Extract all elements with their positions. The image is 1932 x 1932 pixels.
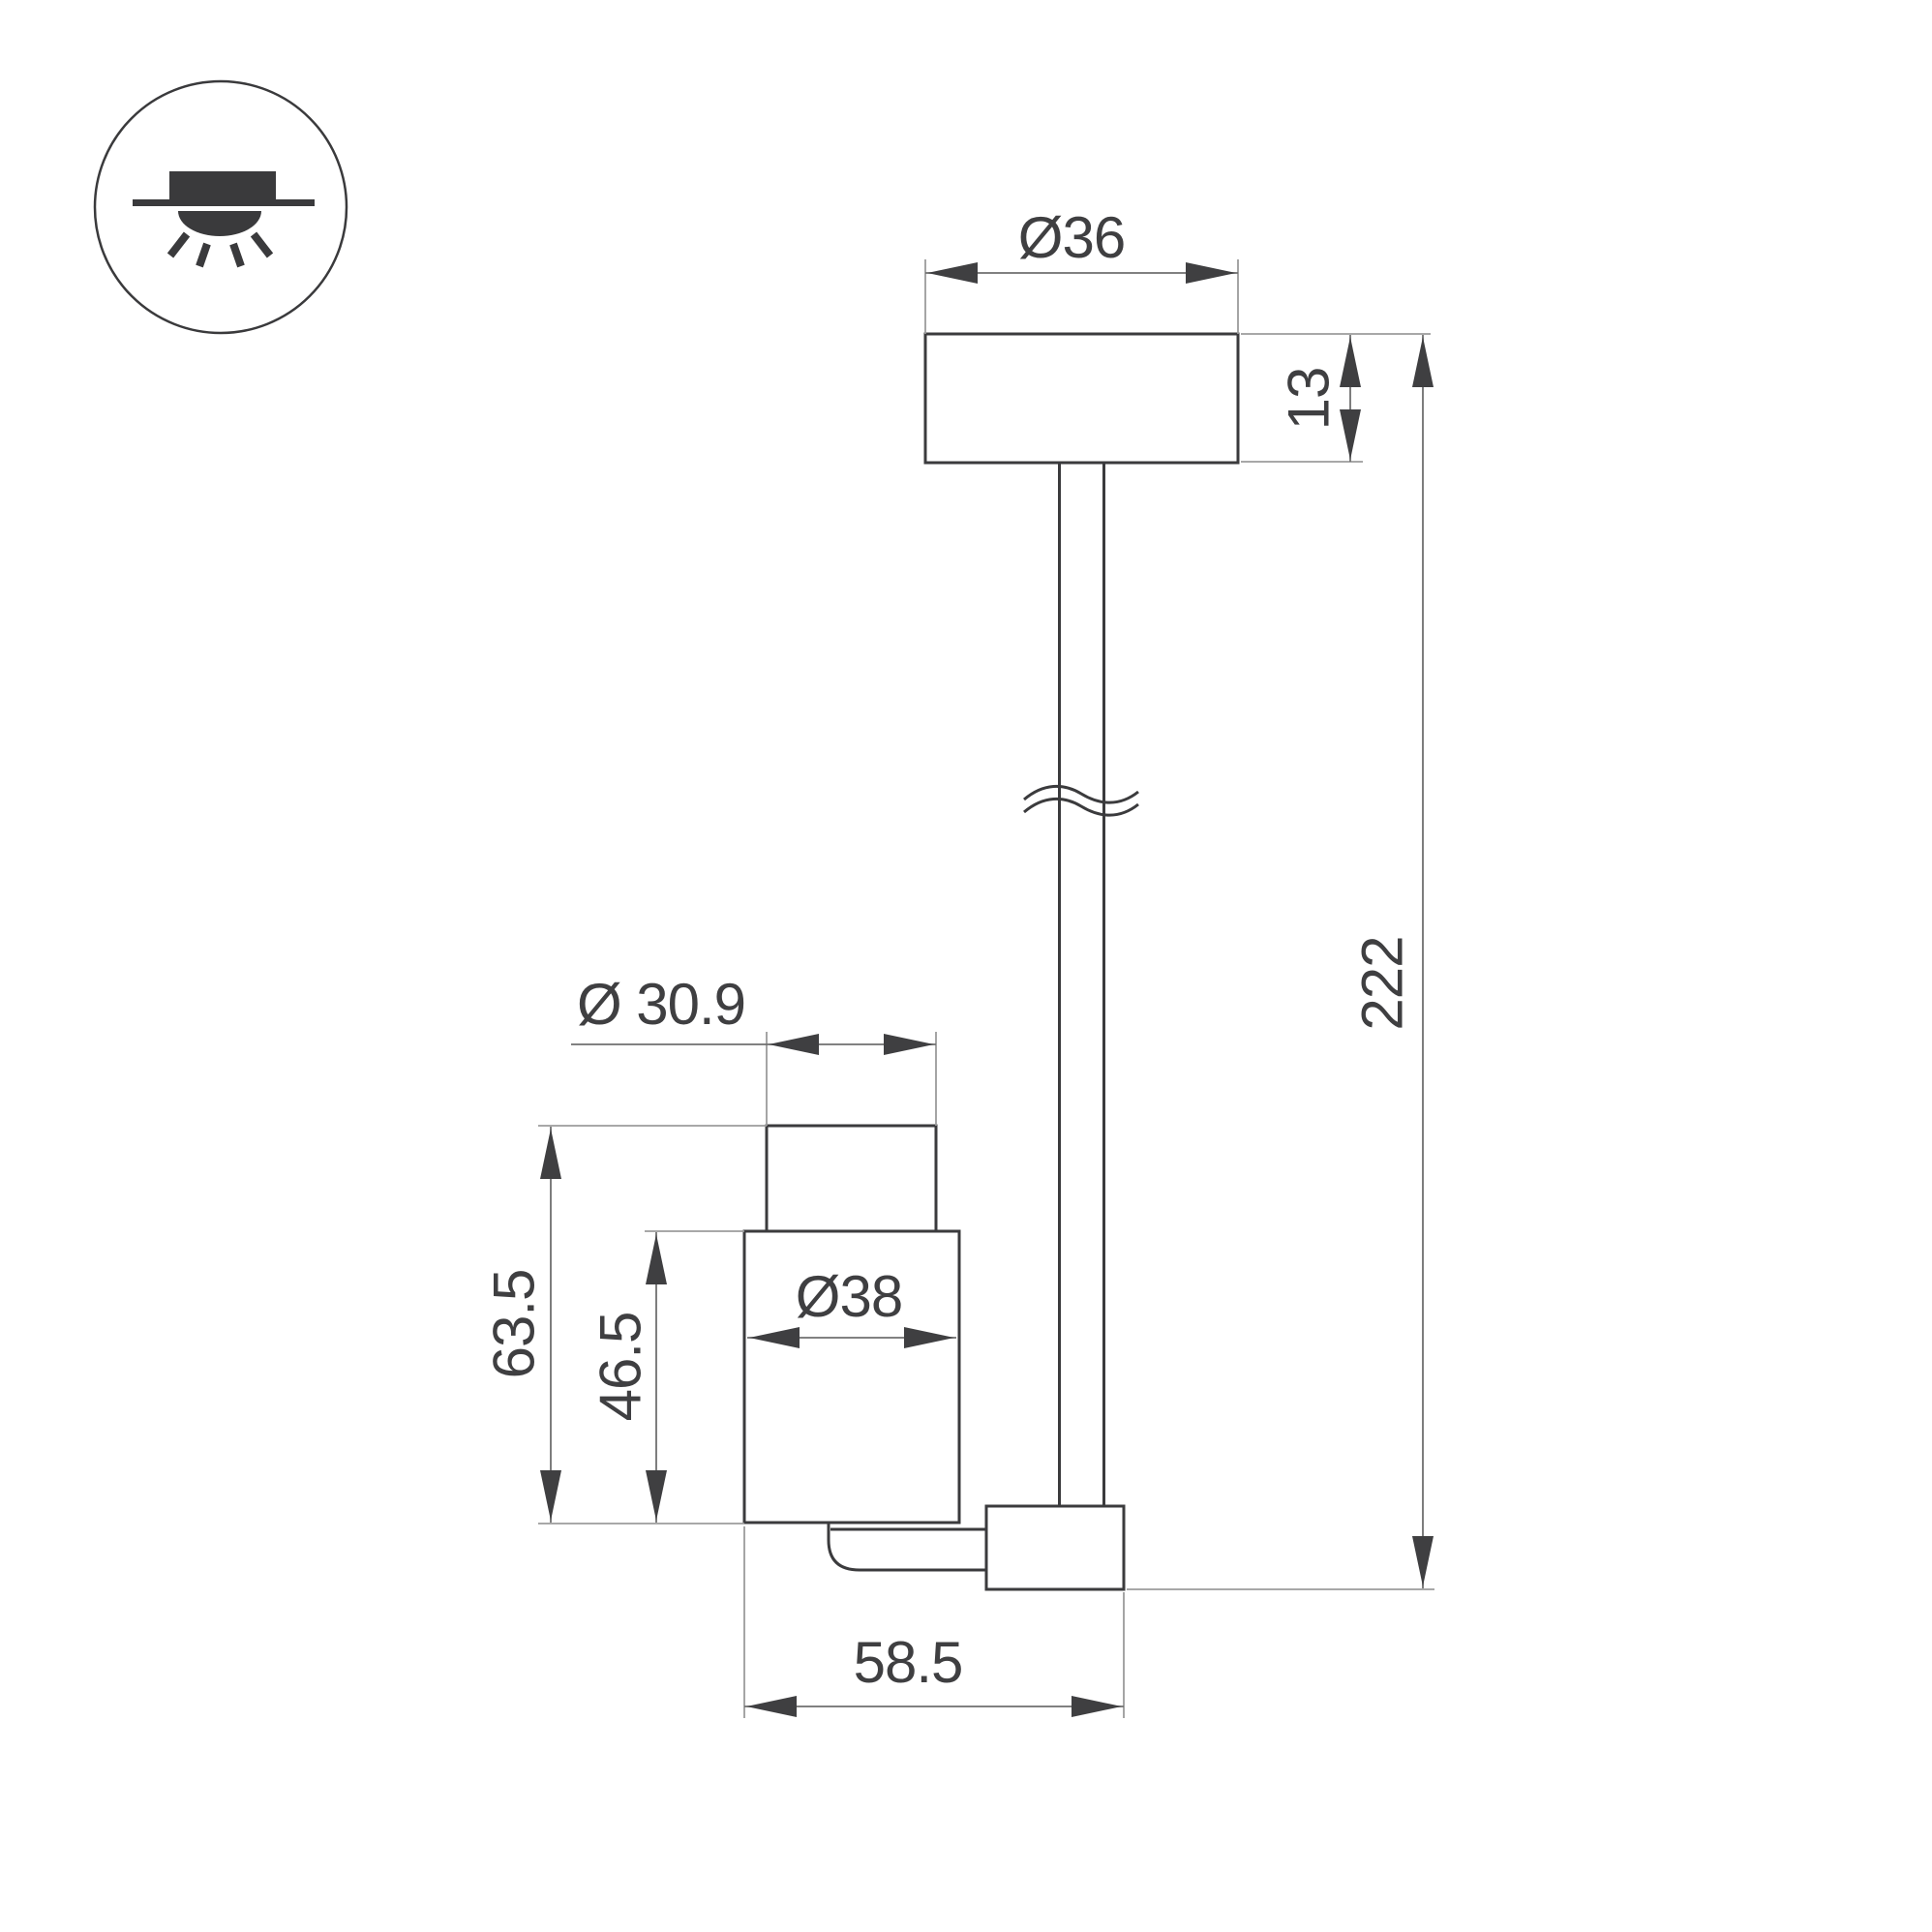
dim-label-canopy-height: 13 [1277,368,1342,431]
dim-head-top-diameter: Ø 30.9 [571,972,936,1126]
break-symbol [1024,786,1138,815]
drawing-canvas: Ø36 13 222 Ø 30.9 Ø38 [0,0,1932,1932]
icon-light-dome [178,211,261,236]
canopy-outline [925,334,1238,463]
dim-label-head-body-height: 46.5 [589,1313,653,1422]
dim-overall-length: 222 [1127,335,1434,1589]
icon-circle-border [95,81,347,333]
icon-fixture-body [169,171,276,201]
suspension-rod [1060,463,1104,1549]
dim-label-base-length: 58.5 [854,1630,963,1695]
icon-light-rays [170,234,270,266]
ceiling-light-icon [95,81,347,333]
rod-bracket-outline [986,1506,1124,1589]
head-bezel-outline [767,1126,936,1231]
dim-canopy-height: 13 [1241,334,1431,462]
dim-label-overall-length: 222 [1350,936,1415,1030]
dim-head-body-height: 46.5 [589,1231,745,1523]
dim-label-head-top-diameter: Ø 30.9 [577,972,745,1037]
dim-canopy-diameter: Ø36 [925,205,1238,334]
elbow-tube [829,1523,989,1570]
dim-label-head-body-diameter: Ø38 [796,1264,902,1329]
dim-label-head-total-height: 63.5 [482,1270,547,1379]
dim-label-canopy-diameter: Ø36 [1018,205,1125,270]
technical-drawing: Ø36 13 222 Ø 30.9 Ø38 [0,0,1932,1932]
icon-ceiling-line [133,199,315,206]
